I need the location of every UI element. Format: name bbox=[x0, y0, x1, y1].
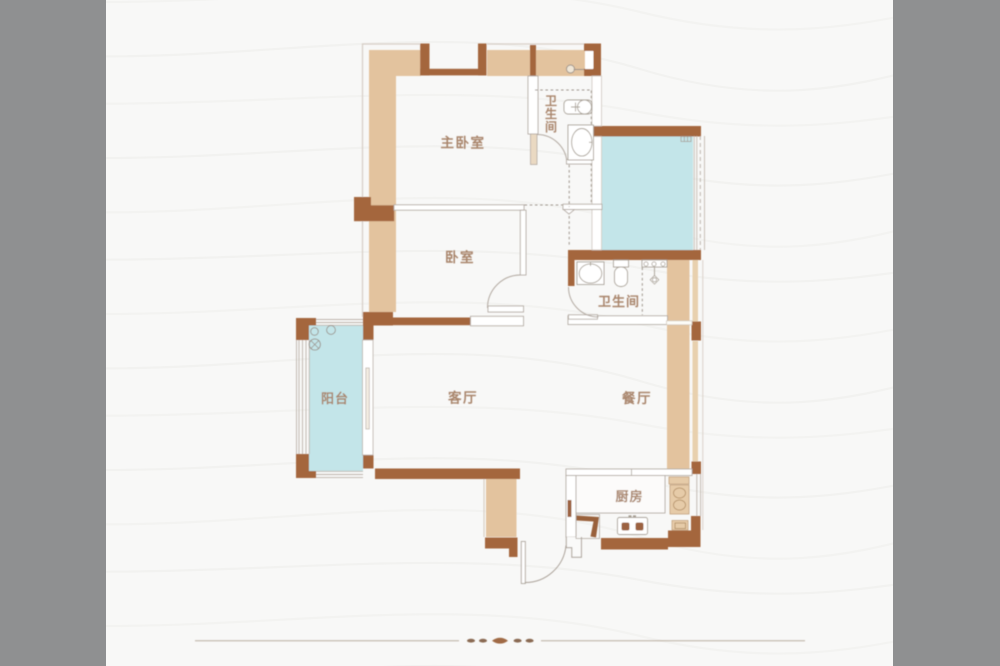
svg-text:间: 间 bbox=[545, 119, 557, 134]
svg-text:阳台: 阳台 bbox=[321, 391, 349, 406]
svg-text:主卧室: 主卧室 bbox=[441, 135, 486, 151]
svg-text:卫: 卫 bbox=[545, 94, 557, 108]
svg-text:餐厅: 餐厅 bbox=[621, 390, 652, 406]
svg-text:生: 生 bbox=[545, 106, 557, 121]
svg-text:厨房: 厨房 bbox=[615, 489, 643, 504]
svg-text:卫生间: 卫生间 bbox=[598, 294, 640, 309]
svg-text:客厅: 客厅 bbox=[447, 390, 478, 406]
svg-text:卧室: 卧室 bbox=[445, 249, 475, 265]
